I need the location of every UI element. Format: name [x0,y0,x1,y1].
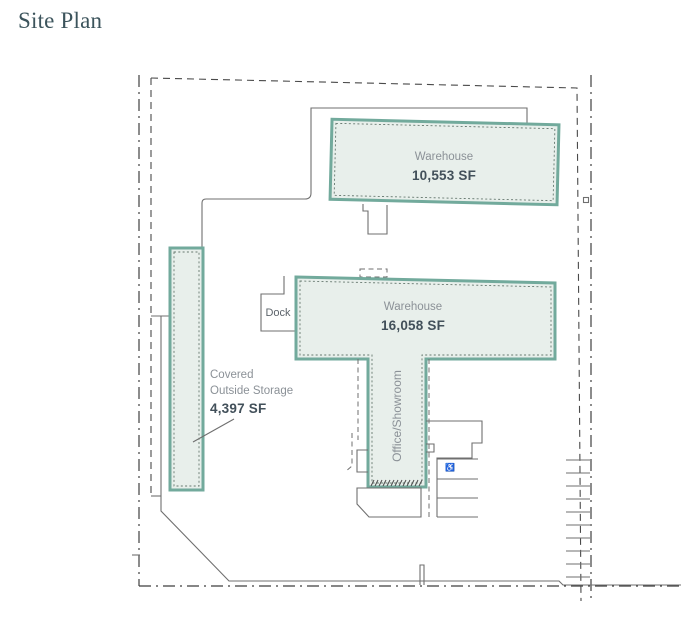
office-showroom-label: Office/Showroom [390,370,404,462]
dashed-stub [360,269,387,277]
site-plan-drawing: Warehouse 10,553 SF Dock Warehouse 16,05… [0,0,681,620]
warehouse-top-bumpout [363,204,387,234]
warehouse-top-area: 10,553 SF [412,168,476,183]
stem-dashed-left-2 [345,433,352,472]
warehouse-top-name: Warehouse [415,151,473,163]
dock-label: Dock [265,307,291,319]
right-parking-stripes [566,460,590,577]
sign-post [420,565,424,585]
utility-marker [584,198,589,203]
stall-stripes [437,459,478,517]
storage-area: 4,397 SF [210,401,266,416]
site-plan-page: Site Plan Warehouse [0,0,681,620]
storage-building [170,248,203,490]
storage-name-line1: Covered [210,369,253,381]
storage-name-line2: Outside Storage [210,385,293,397]
accessible-parking-icon: ♿ [445,462,455,472]
warehouse-main-area: 16,058 SF [381,318,445,333]
warehouse-main-name: Warehouse [384,301,442,313]
storage-footprint [170,248,203,490]
office-parking-stalls: ♿ [437,459,478,517]
storage-label-group: Covered Outside Storage 4,397 SF [193,369,293,442]
entry-canopy [357,488,421,517]
dock-outline [261,276,296,331]
stem-left-step [357,450,368,472]
adjacent-building-outline [426,421,482,459]
